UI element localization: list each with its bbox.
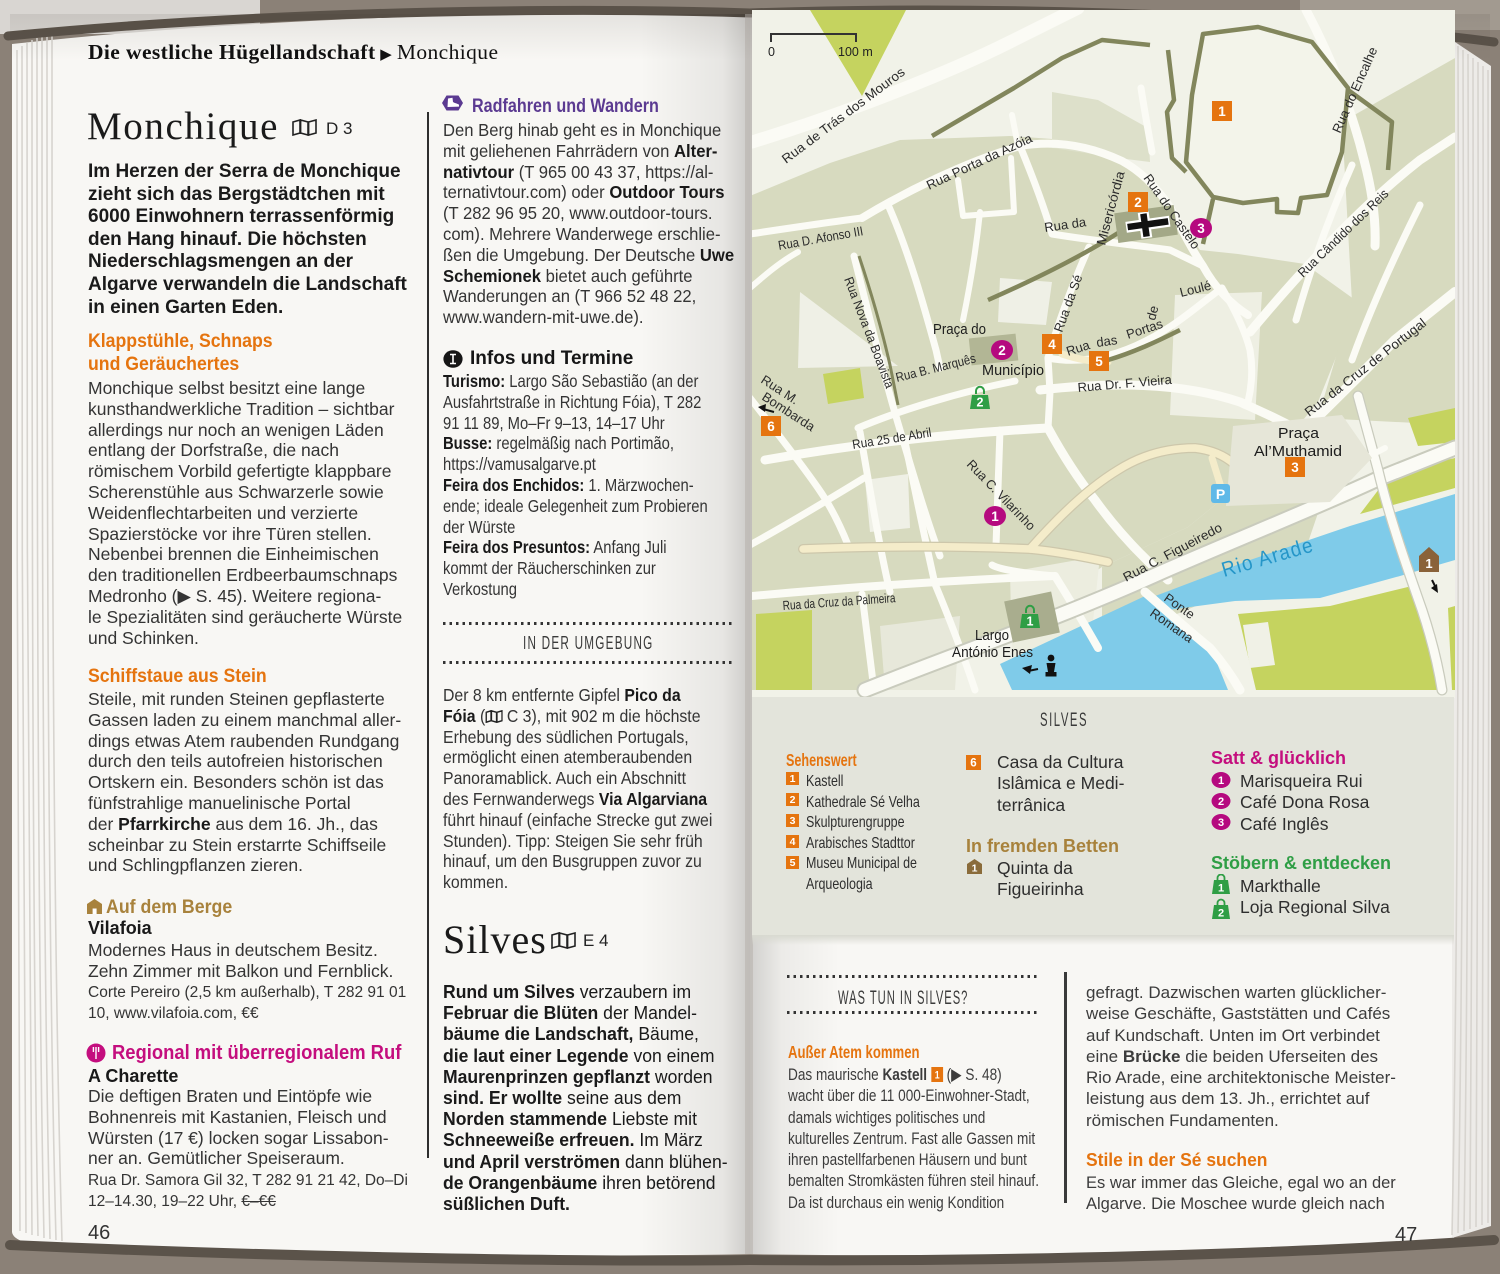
svg-text:António Enes: António Enes bbox=[952, 644, 1033, 661]
svg-text:2: 2 bbox=[1218, 796, 1224, 808]
svg-text:0: 0 bbox=[768, 45, 775, 59]
svg-text:2: 2 bbox=[998, 343, 1006, 358]
svg-text:1: 1 bbox=[1425, 556, 1432, 571]
svg-text:4: 4 bbox=[790, 836, 796, 848]
svg-text:3: 3 bbox=[1197, 221, 1205, 236]
svg-text:1: 1 bbox=[1218, 775, 1224, 787]
svg-text:Praça do: Praça do bbox=[933, 321, 986, 338]
svg-text:3: 3 bbox=[790, 815, 796, 827]
svg-text:das: das bbox=[1095, 332, 1118, 350]
svg-text:1: 1 bbox=[1218, 883, 1224, 895]
svg-text:2: 2 bbox=[1134, 195, 1142, 210]
svg-text:3: 3 bbox=[1218, 817, 1224, 829]
svg-text:3: 3 bbox=[1291, 460, 1299, 475]
svg-text:1: 1 bbox=[1218, 104, 1226, 119]
svg-text:6: 6 bbox=[767, 419, 775, 434]
svg-text:Município: Município bbox=[982, 362, 1044, 379]
svg-text:1: 1 bbox=[972, 863, 978, 875]
svg-text:2: 2 bbox=[977, 396, 984, 410]
svg-text:100 m: 100 m bbox=[838, 45, 873, 59]
svg-text:2: 2 bbox=[790, 794, 796, 806]
svg-text:1: 1 bbox=[991, 509, 999, 524]
svg-text:5: 5 bbox=[790, 857, 796, 869]
svg-text:Praça: Praça bbox=[1278, 425, 1320, 442]
svg-text:4: 4 bbox=[1048, 337, 1056, 352]
svg-text:1: 1 bbox=[790, 773, 796, 785]
svg-text:6: 6 bbox=[970, 758, 976, 770]
svg-text:1: 1 bbox=[934, 1070, 939, 1082]
svg-text:P: P bbox=[1216, 486, 1225, 502]
svg-text:2: 2 bbox=[1218, 908, 1224, 920]
svg-text:1: 1 bbox=[1027, 615, 1034, 629]
svg-text:Largo: Largo bbox=[975, 627, 1009, 644]
svg-text:5: 5 bbox=[1095, 354, 1103, 369]
